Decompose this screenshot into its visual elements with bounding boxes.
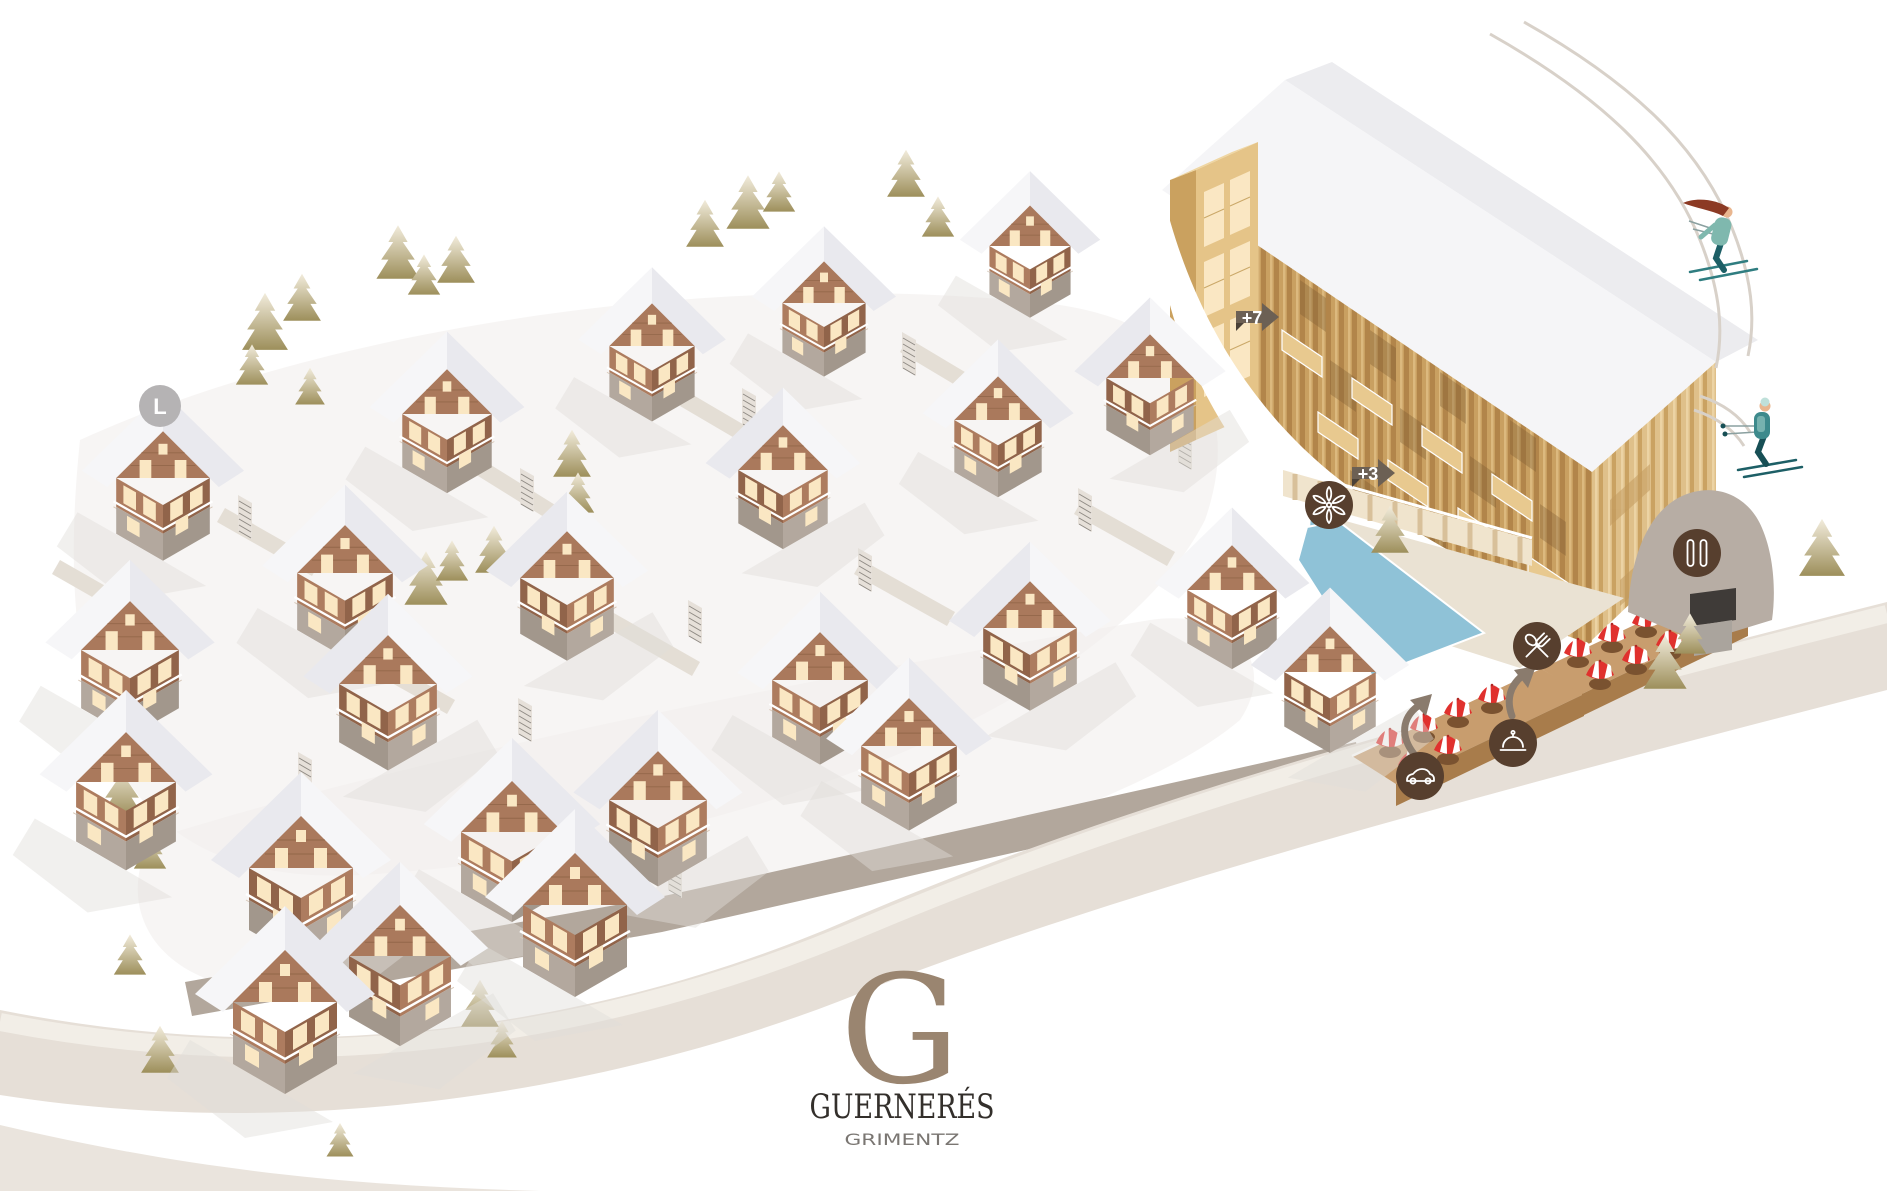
- ski-room-icon[interactable]: [1673, 529, 1721, 577]
- skier-male: [1721, 398, 1803, 478]
- skier-hair: [1683, 200, 1729, 216]
- lot-badge-label: L: [153, 394, 166, 419]
- spa-icon[interactable]: [1305, 481, 1353, 529]
- lot-badge[interactable]: L: [139, 385, 181, 427]
- valet-car-icon[interactable]: [1396, 752, 1444, 800]
- restaurant-icon[interactable]: [1513, 622, 1561, 670]
- badge-plus3-label: +3: [1358, 464, 1379, 484]
- site-plan-canvas: +7 +3 L G GUERNERÉS GRIMENTZ: [0, 0, 1887, 1191]
- skier-beanie: [1761, 398, 1770, 407]
- logo-location: GRIMENTZ: [845, 1130, 960, 1149]
- concierge-bell-icon[interactable]: [1489, 719, 1537, 767]
- ski-room-door[interactable]: [1690, 588, 1736, 626]
- logo-name: GUERNERÉS: [810, 1086, 995, 1127]
- resort-site-plan: +7 +3 L G GUERNERÉS GRIMENTZ: [0, 0, 1887, 1191]
- badge-plus7-label: +7: [1242, 308, 1263, 328]
